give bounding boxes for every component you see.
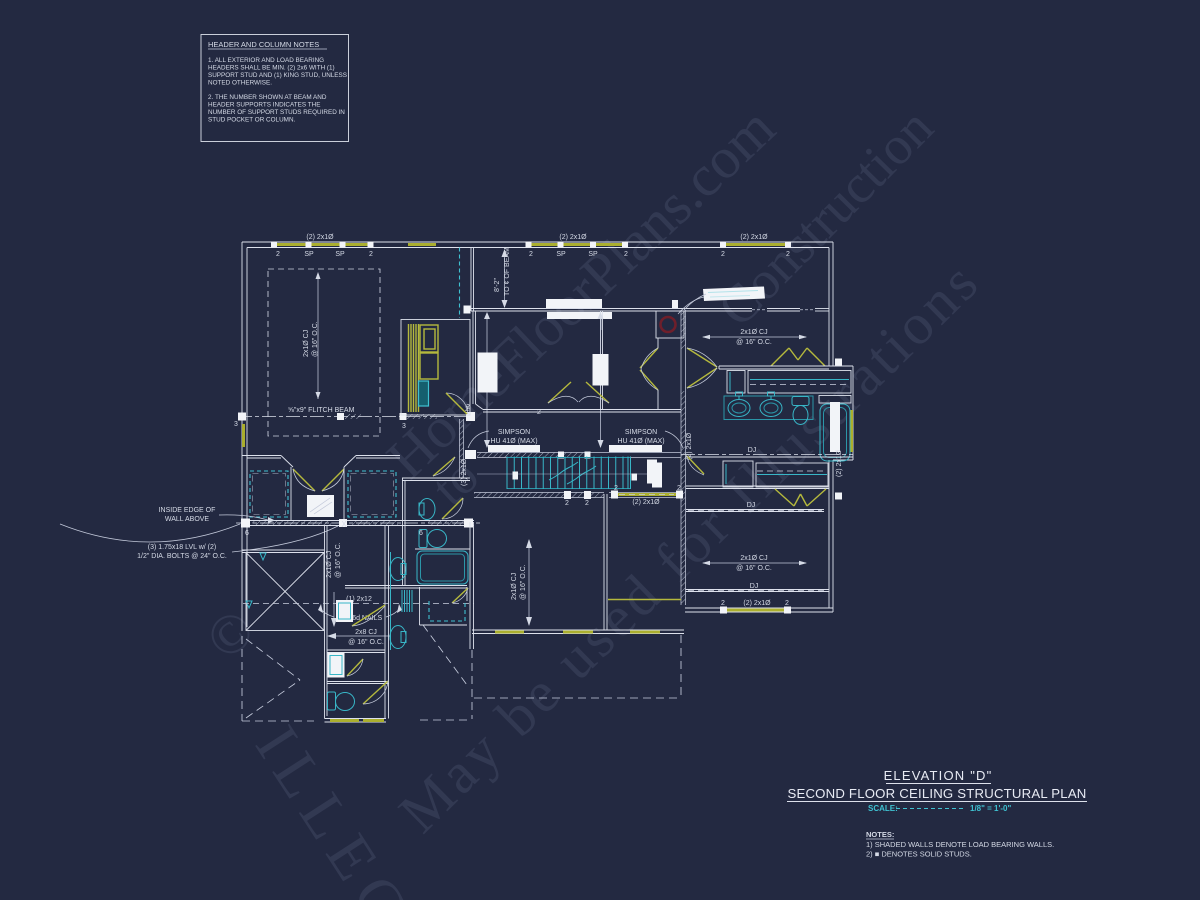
svg-text:TO ¢ OF BEAM: TO ¢ OF BEAM (504, 247, 511, 296)
svg-text:SIMPSON: SIMPSON (625, 429, 657, 436)
svg-text:(3) 1.75x18 LVL w/ (2): (3) 1.75x18 LVL w/ (2) (148, 544, 216, 551)
svg-text:(2) 2x1Ø: (2) 2x1Ø (632, 499, 660, 506)
svg-text:DJ: DJ (747, 502, 756, 509)
svg-text:NOTED OTHERWISE.: NOTED OTHERWISE. (208, 80, 272, 87)
svg-text:2x8 CJ: 2x8 CJ (355, 629, 377, 636)
svg-text:2x1Ø CJ: 2x1Ø CJ (303, 330, 310, 357)
svg-text:@ 16" O.C.: @ 16" O.C. (736, 339, 772, 346)
svg-text:@ 16" O.C.: @ 16" O.C. (335, 542, 342, 578)
svg-text:ELEVATION "D": ELEVATION "D" (884, 768, 993, 783)
svg-text:1. ALL EXTERIOR AND LOAD BEARI: 1. ALL EXTERIOR AND LOAD BEARING (208, 57, 324, 64)
svg-text:2x1Ø CJ: 2x1Ø CJ (740, 555, 767, 562)
svg-text:(2) 2x1Ø: (2) 2x1Ø (306, 234, 334, 241)
svg-text:2: 2 (276, 251, 280, 258)
svg-text:3: 3 (402, 423, 406, 430)
svg-text:(3) 2x1Ø: (3) 2x1Ø (461, 458, 468, 486)
svg-text:SP: SP (556, 251, 566, 258)
svg-text:SECOND FLOOR CEILING STRUCTURA: SECOND FLOOR CEILING STRUCTURAL PLAN (787, 786, 1086, 801)
svg-text:(2) 2x1Ø: (2) 2x1Ø (836, 449, 843, 477)
svg-text:SCALE:: SCALE: (868, 804, 898, 813)
svg-text:2: 2 (529, 251, 533, 258)
svg-text:HU 41Ø (MAX): HU 41Ø (MAX) (490, 438, 537, 445)
svg-text:HEADERS SHALL BE MIN. (2) 2x6: HEADERS SHALL BE MIN. (2) 2x6 WITH (1) (208, 65, 335, 72)
svg-text:HU 41Ø (MAX): HU 41Ø (MAX) (617, 438, 664, 445)
svg-text:SUPPORT STUD AND (1) KING STUD: SUPPORT STUD AND (1) KING STUD, UNLESS (208, 72, 347, 79)
svg-text:2. THE NUMBER SHOWN AT BEAM AN: 2. THE NUMBER SHOWN AT BEAM AND (208, 94, 327, 101)
svg-text:@ 16" O.C.: @ 16" O.C. (520, 564, 527, 600)
svg-text:2x1Ø CJ: 2x1Ø CJ (511, 573, 518, 600)
svg-text:2: 2 (614, 485, 618, 492)
svg-text:2: 2 (721, 251, 725, 258)
svg-text:@ 16" O.C.: @ 16" O.C. (312, 321, 319, 357)
svg-text:DJ: DJ (750, 583, 759, 590)
svg-text:3: 3 (234, 421, 238, 428)
svg-text:2x1Ø CJ: 2x1Ø CJ (740, 329, 767, 336)
svg-text:2) ■ DENOTES SOLID STUDS.: 2) ■ DENOTES SOLID STUDS. (866, 850, 972, 859)
svg-text:SP: SP (588, 251, 598, 258)
svg-text:2: 2 (786, 251, 790, 258)
svg-text:X: X (341, 520, 347, 529)
svg-text:(2) 2x1Ø: (2) 2x1Ø (686, 432, 693, 460)
svg-text:NUMBER OF SUPPORT STUDS REQUIR: NUMBER OF SUPPORT STUDS REQUIRED IN (208, 109, 345, 116)
svg-text:6: 6 (245, 530, 249, 537)
svg-text:1/8" = 1'-0": 1/8" = 1'-0" (970, 804, 1011, 813)
svg-text:2: 2 (785, 600, 789, 607)
svg-text:8'-2": 8'-2" (494, 278, 501, 292)
svg-text:2: 2 (677, 485, 681, 492)
svg-text:2: 2 (537, 409, 541, 416)
svg-text:SIMPSON: SIMPSON (498, 429, 530, 436)
svg-text:2: 2 (565, 500, 569, 507)
svg-text:⅝"x9" FLITCH BEAM: ⅝"x9" FLITCH BEAM (288, 407, 355, 414)
svg-text:2: 2 (466, 404, 470, 411)
svg-text:HEADER AND COLUMN NOTES: HEADER AND COLUMN NOTES (208, 40, 319, 49)
svg-text:2: 2 (624, 251, 628, 258)
svg-text:SP: SP (335, 251, 345, 258)
svg-text:SP: SP (304, 251, 314, 258)
svg-text:(2) 2x1Ø: (2) 2x1Ø (743, 600, 771, 607)
svg-text:STUD POCKET OR COLUMN.: STUD POCKET OR COLUMN. (208, 117, 296, 124)
svg-text:2: 2 (369, 251, 373, 258)
svg-text:1) SHADED WALLS DENOTE LOAD BE: 1) SHADED WALLS DENOTE LOAD BEARING WALL… (866, 840, 1054, 849)
svg-text:DJ: DJ (748, 447, 757, 454)
svg-text:WALL ABOVE: WALL ABOVE (165, 516, 210, 523)
svg-text:NOTES:: NOTES: (866, 830, 894, 839)
svg-text:6: 6 (419, 530, 423, 537)
svg-text:2: 2 (585, 500, 589, 507)
svg-text:INSIDE EDGE OF: INSIDE EDGE OF (159, 507, 216, 514)
svg-text:(2) 2x1Ø: (2) 2x1Ø (559, 234, 587, 241)
svg-text:(2) 2x1Ø: (2) 2x1Ø (740, 234, 768, 241)
svg-text:2: 2 (721, 600, 725, 607)
svg-text:@ 16" O.C.: @ 16" O.C. (348, 639, 384, 646)
svg-text:1/2" DIA. BOLTS @ 24" O.C.: 1/2" DIA. BOLTS @ 24" O.C. (137, 553, 227, 560)
svg-text:HEADER SUPPORTS INDICATES THE: HEADER SUPPORTS INDICATES THE (208, 102, 320, 109)
svg-text:@ 16" O.C.: @ 16" O.C. (736, 565, 772, 572)
